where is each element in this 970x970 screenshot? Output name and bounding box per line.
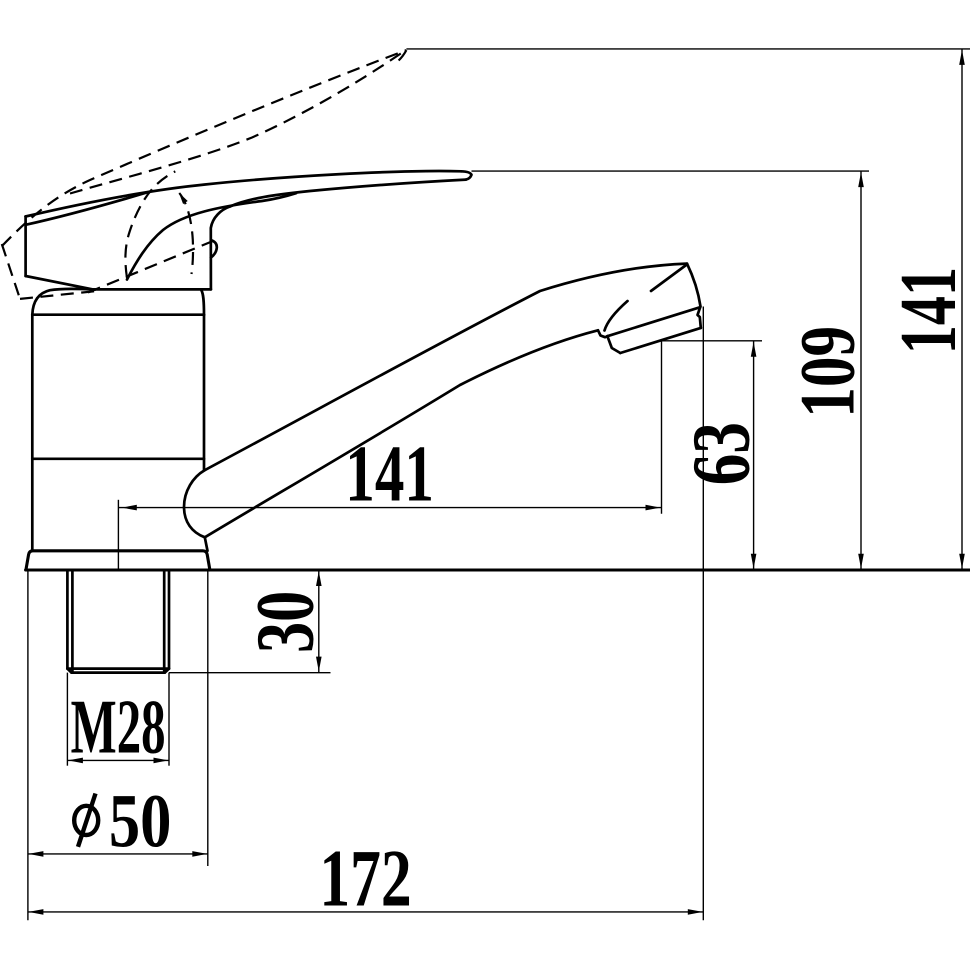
svg-text:M28: M28 [71,684,166,770]
svg-text:63: 63 [674,422,766,485]
svg-text:50: 50 [109,780,172,864]
svg-text:30: 30 [239,591,331,653]
svg-text:109: 109 [784,326,871,418]
svg-text:141: 141 [885,267,970,354]
svg-text:141: 141 [345,430,434,519]
svg-text:172: 172 [319,833,411,923]
